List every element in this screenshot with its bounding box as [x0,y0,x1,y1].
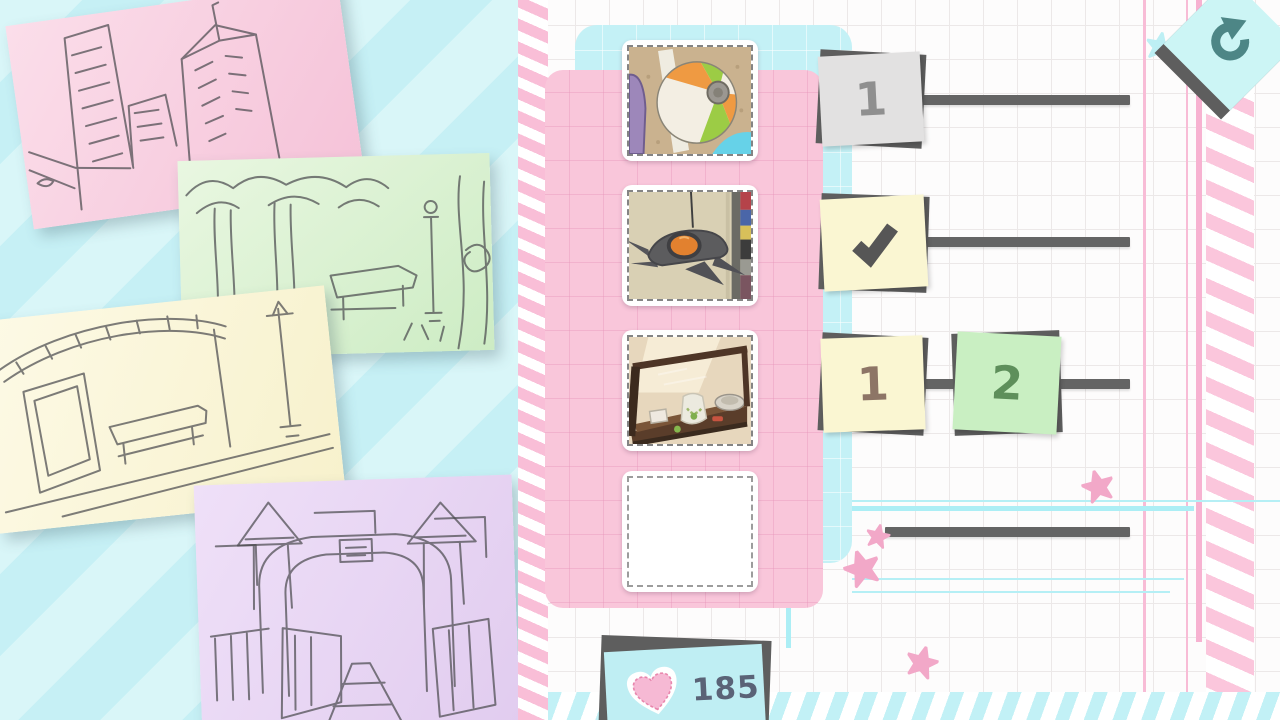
worksheet-panel: 1 1 2 [548,0,1280,720]
photo-slot-spaceship[interactable] [622,185,758,306]
note-count-label: 1 [856,356,890,411]
toy-spaceship-photo [627,190,753,301]
progress-note-row3-a[interactable]: 1 [822,337,924,431]
pink-rule-line [1143,0,1146,694]
row4-line [885,527,1130,537]
cyan-rule-line [852,578,1184,580]
divider-stripe [518,0,548,720]
redo-button[interactable] [1183,0,1277,91]
cyan-rule-line [852,591,1170,593]
pink-star-icon [902,642,941,681]
note-count-label: 1 [854,71,889,127]
cyan-rule-line [852,506,1194,511]
pink-rule-line [1186,0,1188,720]
empty-slot [627,476,753,587]
score-counter: 185 [596,634,776,720]
row2-line [904,237,1130,247]
photo-slot-jewelry-case[interactable] [622,330,758,451]
score-value: 185 [691,669,761,708]
beach-ball-photo [627,45,753,156]
sketch-board [0,0,548,720]
progress-note-row3-b[interactable]: 2 [955,334,1059,432]
cyan-tick-line [786,608,791,648]
note-count-label: 2 [990,355,1025,411]
progress-note-row1[interactable]: 1 [820,54,922,144]
checkmark-icon [844,213,905,274]
heart-icon [624,664,685,720]
row1-line [900,95,1130,105]
redo-arrow-icon [1201,11,1260,70]
cyan-rule-line [852,500,1280,502]
photo-slot-empty[interactable] [622,471,758,592]
counter-card: 185 [604,644,766,720]
sketch-note-gate[interactable] [194,475,521,720]
game-screen: 1 1 2 [0,0,1280,720]
gate-sketch-drawing [194,475,521,720]
progress-note-row2[interactable] [822,197,926,289]
photo-slot-beach-ball[interactable] [622,40,758,161]
jewelry-case-photo [627,335,753,446]
